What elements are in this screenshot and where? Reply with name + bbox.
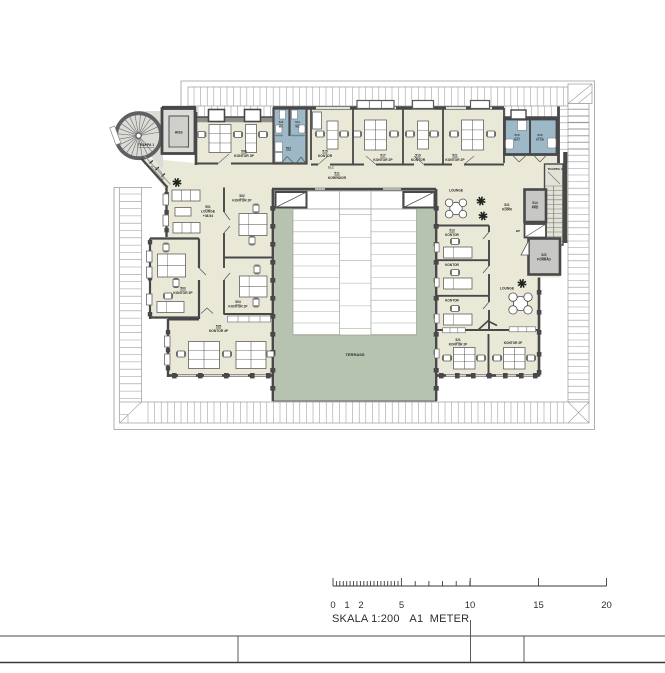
svg-text:+36.54: +36.54 [203,214,213,218]
svg-text:KONTOR 2P: KONTOR 2P [445,158,465,162]
svg-text:FRD: FRD [532,205,539,209]
svg-text:FÖRRÅD: FÖRRÅD [537,256,551,261]
svg-text:516: 516 [537,133,542,137]
svg-text:TRAPPA 4: TRAPPA 4 [548,167,563,171]
svg-text:1: 1 [344,600,349,611]
svg-text:LOUNGE: LOUNGE [449,189,464,193]
svg-text:KONTOR: KONTOR [318,154,333,158]
svg-text:515: 515 [322,150,328,154]
svg-text:514: 514 [295,120,300,124]
svg-text:ELC: ELC [328,166,334,170]
svg-text:521: 521 [452,154,458,158]
svg-text:KONTOR 2P: KONTOR 2P [373,158,393,162]
svg-text:517: 517 [380,154,386,158]
svg-text:LOUNGE: LOUNGE [500,287,515,291]
svg-text:KONTOR 4P: KONTOR 4P [209,329,229,333]
svg-text:513: 513 [279,120,284,124]
svg-text:521: 521 [455,338,461,342]
svg-text:506: 506 [241,150,247,154]
svg-text:519: 519 [415,154,421,158]
svg-text:SKALA 1:200 A1 METER: SKALA 1:200 A1 METER [332,613,469,625]
svg-text:15: 15 [533,600,544,611]
svg-text:TERRASS: TERRASS [345,352,364,357]
svg-text:513: 513 [449,229,455,233]
svg-text:WC: WC [295,124,300,128]
svg-text:WC: WC [279,124,284,128]
svg-text:KONTOR 2P: KONTOR 2P [232,198,252,202]
svg-text:KONTOR 2P: KONTOR 2P [228,304,248,308]
svg-text:LOUNGE: LOUNGE [201,209,216,213]
svg-text:10: 10 [465,600,476,611]
svg-text:515: 515 [514,133,519,137]
svg-text:KONTOR 2P: KONTOR 2P [449,342,468,346]
svg-text:504: 504 [235,300,241,304]
svg-text:KONTOR: KONTOR [411,158,426,162]
svg-text:KONTOR 3P: KONTOR 3P [234,154,254,158]
svg-text:20: 20 [601,600,612,611]
svg-text:BP: BP [516,229,520,233]
svg-text:KONTOR: KONTOR [445,263,459,267]
svg-text:HISS: HISS [175,131,184,135]
svg-text:KONTOR: KONTOR [445,299,459,303]
svg-text:KORR: KORR [502,207,512,211]
svg-text:BAT: BAT [514,137,520,141]
svg-text:525: 525 [216,325,222,329]
svg-text:501: 501 [205,205,211,209]
svg-text:512: 512 [286,147,292,151]
svg-text:KORRIDOR: KORRIDOR [328,176,347,180]
svg-text:STÄD: STÄD [536,137,545,141]
svg-text:2: 2 [358,600,363,611]
svg-text:522: 522 [541,253,547,257]
svg-text:5: 5 [399,600,404,611]
svg-text:KONTOR: KONTOR [445,233,459,237]
svg-text:KONTOR 2P: KONTOR 2P [504,341,523,345]
svg-text:0: 0 [330,600,335,611]
svg-text:TRAPPA 1: TRAPPA 1 [138,143,155,147]
svg-text:502: 502 [239,194,245,198]
svg-text:503: 503 [180,287,186,291]
svg-text:KONTOR 3P: KONTOR 3P [173,291,193,295]
svg-text:514: 514 [532,201,538,205]
